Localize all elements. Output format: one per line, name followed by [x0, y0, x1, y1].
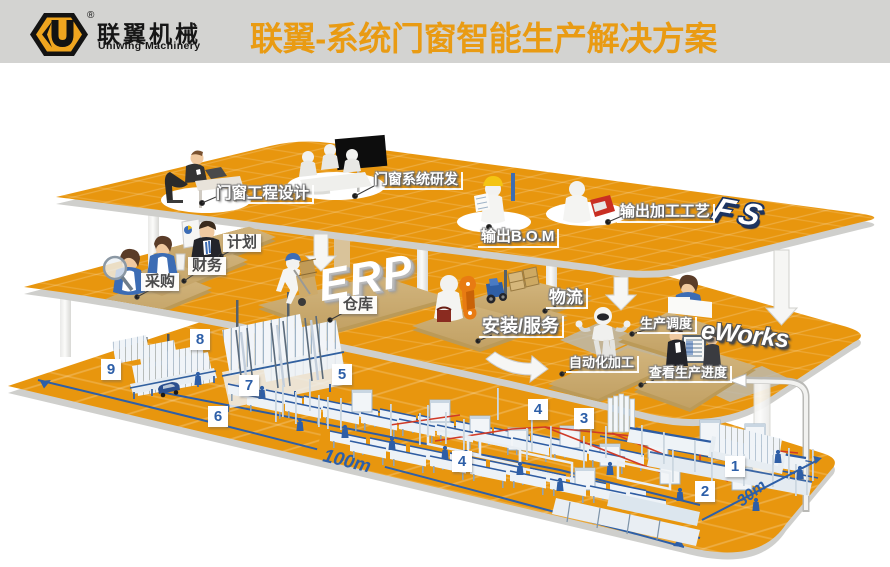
svg-text:®: ® [87, 10, 95, 21]
